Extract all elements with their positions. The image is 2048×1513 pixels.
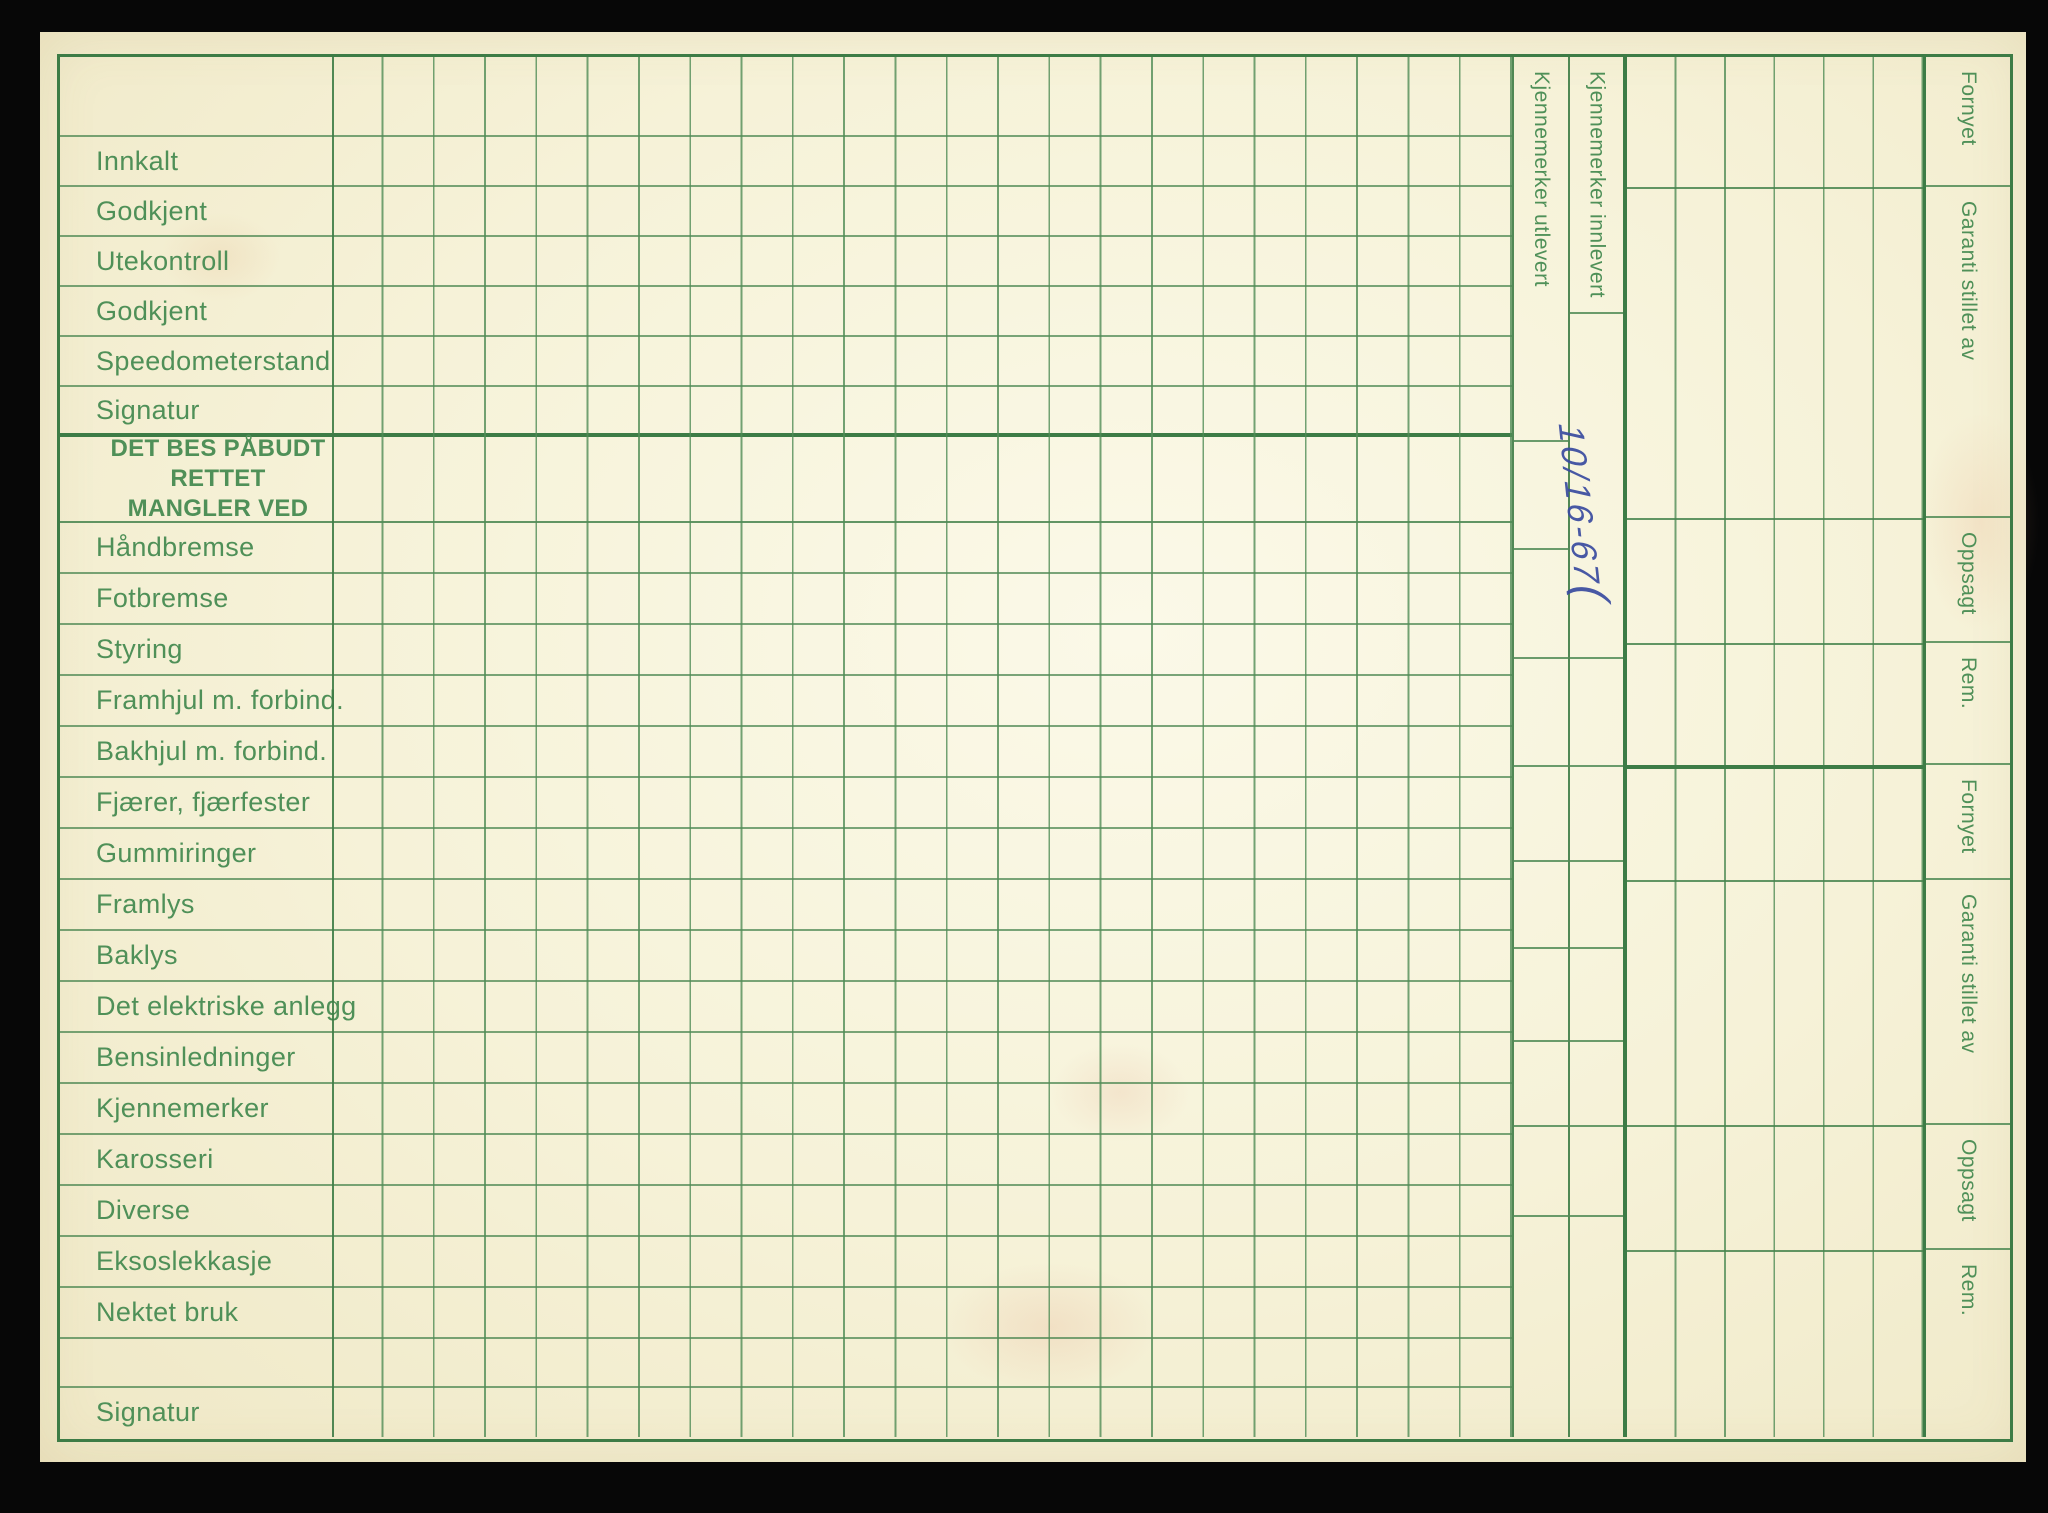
column-label-vertical: Kjennemerker utlevert	[1529, 71, 1553, 287]
cell-divider	[1514, 1125, 1568, 1127]
cell-divider	[1627, 518, 1923, 520]
row-label: Framlys	[60, 889, 195, 920]
segment-rem-2: Rem.	[1926, 1250, 2010, 1437]
insurance-label-column: Fornyet Garanti stillet av Oppsagt Rem. …	[1926, 57, 2010, 1437]
cell-divider	[1570, 1215, 1623, 1217]
cell-divider	[1570, 765, 1623, 767]
insurance-grid-section	[1627, 57, 1923, 1437]
row-label: Innkalt	[60, 146, 178, 177]
segment-label-vertical: Garanti stillet av	[1956, 201, 1980, 361]
row-label: Kjennemerker	[60, 1093, 269, 1124]
cell-divider	[1570, 860, 1623, 862]
row-label: Utekontroll	[60, 246, 229, 277]
column-label-vertical: Kjennemerker innlevert	[1585, 71, 1609, 298]
segment-fornyet-1: Fornyet	[1926, 57, 2010, 187]
row-label: Godkjent	[60, 196, 207, 227]
cell-divider	[1627, 1125, 1923, 1127]
segment-label-vertical: Oppsagt	[1956, 1139, 1980, 1222]
cell-divider	[1627, 187, 1923, 189]
cell-divider	[1570, 1040, 1623, 1042]
cell-divider	[1570, 1125, 1623, 1127]
cell-divider	[1514, 1215, 1568, 1217]
segment-oppsagt-2: Oppsagt	[1926, 1125, 2010, 1250]
row-label: Fjærer, fjærfester	[60, 787, 310, 818]
row-label: Det elektriske anlegg	[60, 991, 357, 1022]
section-header-line1: DET BES PÅBUDT RETTET	[68, 434, 368, 494]
section-header: DET BES PÅBUDT RETTET MANGLER VED	[60, 434, 368, 524]
cell-divider	[1570, 947, 1623, 949]
segment-label-vertical: Oppsagt	[1956, 532, 1980, 615]
column-kjennemerker-innlevert: Kjennemerker innlevert	[1568, 57, 1623, 1437]
cell-divider	[1514, 765, 1568, 767]
cell-divider	[1514, 860, 1568, 862]
segment-rem-1: Rem.	[1926, 643, 2010, 765]
section-header-line2: MANGLER VED	[68, 494, 368, 524]
column-kjennemerker-utlevert: Kjennemerker utlevert	[1512, 57, 1568, 1437]
row-label: Signatur	[60, 395, 200, 426]
segment-label-vertical: Rem.	[1956, 1264, 1980, 1316]
segment-label-vertical: Rem.	[1956, 657, 1980, 709]
row-label: Gummiringer	[60, 838, 256, 869]
row-label: Bensinledninger	[60, 1042, 296, 1073]
row-label: Nektet bruk	[60, 1297, 238, 1328]
segment-label-vertical: Garanti stillet av	[1956, 894, 1980, 1054]
row-label: Diverse	[60, 1195, 190, 1226]
cell-divider	[1514, 947, 1568, 949]
cell-divider	[1514, 1040, 1568, 1042]
row-label: Speedometerstand	[60, 346, 331, 377]
inspection-form-grid: Innkalt Godkjent Utekontroll Godkjent Sp…	[57, 54, 2013, 1442]
row-label: Styring	[60, 634, 183, 665]
row-label: Framhjul m. forbind.	[60, 685, 344, 716]
row-label: Håndbremse	[60, 532, 255, 563]
block-divider-heavy	[1627, 765, 1923, 769]
cell-divider	[1627, 1250, 1923, 1252]
cell-divider	[1570, 657, 1623, 659]
segment-garanti-2: Garanti stillet av	[1926, 880, 2010, 1125]
row-label: Godkjent	[60, 296, 207, 327]
row-label: Fotbremse	[60, 583, 229, 614]
row-label: Eksoslekkasje	[60, 1246, 272, 1277]
segment-label-vertical: Fornyet	[1956, 71, 1980, 146]
row-label: Baklys	[60, 940, 178, 971]
segment-label-vertical: Fornyet	[1956, 779, 1980, 854]
cell-divider	[1570, 312, 1623, 314]
row-label: Karosseri	[60, 1144, 214, 1175]
main-grid-column-lines	[332, 57, 1512, 1437]
segment-oppsagt-1: Oppsagt	[1926, 518, 2010, 643]
segment-fornyet-2: Fornyet	[1926, 765, 2010, 880]
scanned-inspection-card-page: { "palette": { "paper": "#f6f2d8", "grid…	[0, 0, 2048, 1513]
segment-garanti-1: Garanti stillet av	[1926, 187, 2010, 518]
cell-divider	[1627, 880, 1923, 882]
row-label: Bakhjul m. forbind.	[60, 736, 327, 767]
handwritten-flourish: (	[1565, 584, 1619, 604]
cell-divider	[1627, 643, 1923, 645]
row-label: Signatur	[60, 1397, 200, 1428]
card-paper: Innkalt Godkjent Utekontroll Godkjent Sp…	[40, 32, 2026, 1462]
cell-divider	[1514, 657, 1568, 659]
